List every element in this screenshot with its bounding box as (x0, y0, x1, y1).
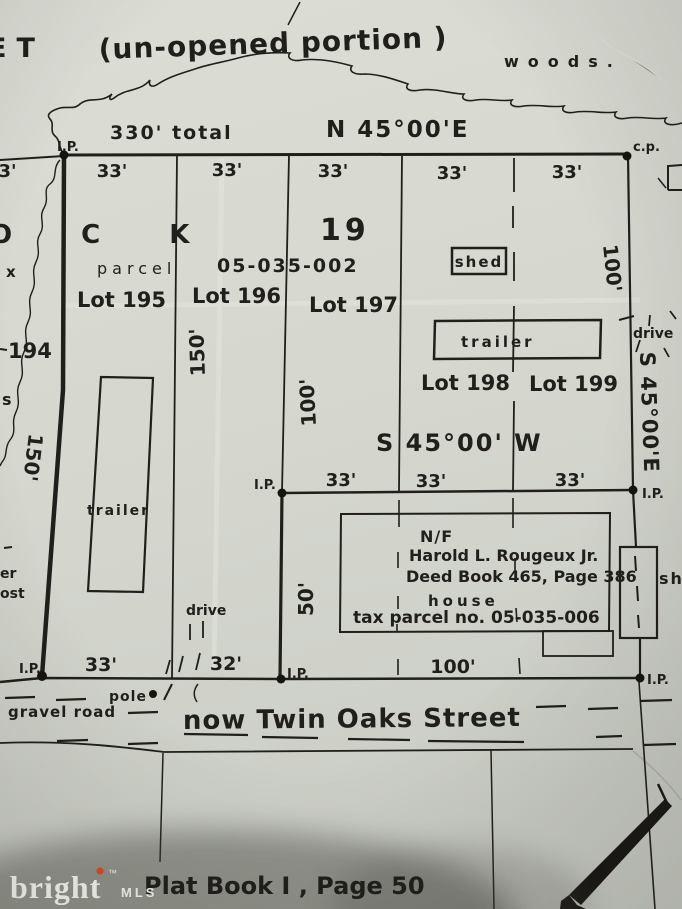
vignette-overlay (0, 0, 682, 909)
survey-plat-svg: ET (un-opened portion ) woods. 330' tota… (0, 0, 682, 909)
plat-map-photo: ET (un-opened portion ) woods. 330' tota… (0, 0, 682, 909)
